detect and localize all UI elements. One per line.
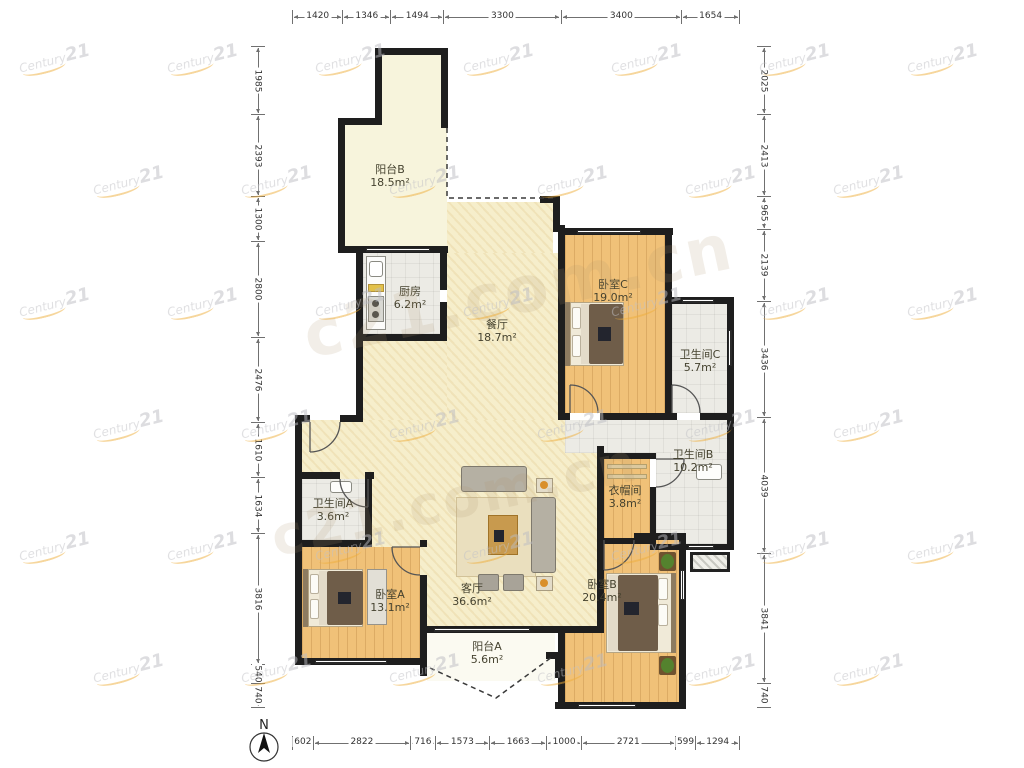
stove-burner [372, 311, 379, 318]
room-label-bath-a: 卫生间A 3.6m² [298, 497, 368, 523]
wall [679, 533, 686, 709]
watermark: Century21 [91, 162, 167, 200]
room-label-bath-b: 卫生间B 10.2m² [655, 448, 731, 474]
room-name: 客厅 [437, 582, 507, 595]
bed-b-headboard [671, 573, 676, 653]
window [315, 660, 387, 664]
watermark: Century21 [905, 40, 981, 78]
room-area: 18.7m² [462, 331, 532, 344]
dimension-segment: 740 [251, 683, 265, 708]
watermark-swoosh-icon [317, 58, 362, 79]
dimension-value: 716 [412, 737, 433, 747]
cloak-shelf [607, 464, 647, 469]
dimension-segment: 540 [251, 664, 265, 683]
room-label-balcony-b: 阳台B 18.5m² [355, 163, 425, 189]
wall [340, 415, 363, 422]
dimension-value: 4039 [758, 472, 768, 499]
room-label-bedroom-c: 卧室C 19.0m² [578, 278, 648, 304]
room-area: 6.2m² [375, 298, 445, 311]
watermark: Century21 [17, 284, 93, 322]
bed-c-tray [598, 327, 611, 341]
window [578, 704, 636, 708]
window [577, 230, 641, 234]
watermark: Century21 [165, 528, 241, 566]
compass-needle-icon [258, 733, 270, 753]
plant-icon [659, 552, 676, 571]
dimension-segment: 2393 [251, 114, 265, 196]
dimension-value: 599 [675, 737, 696, 747]
room-label-bedroom-a: 卧室A 13.1m² [355, 588, 425, 614]
watermark-swoosh-icon [169, 302, 214, 323]
dimension-value: 1573 [449, 737, 476, 747]
dimension-value: 1494 [404, 11, 431, 21]
room-label-kitchen: 厨房 6.2m² [375, 285, 445, 311]
kitchen-sink-icon [369, 261, 383, 277]
watermark: Century21 [91, 650, 167, 688]
watermark: Century21 [17, 40, 93, 78]
dimension-value: 1000 [551, 737, 578, 747]
compass-circle [250, 733, 278, 761]
room-label-balcony-a: 阳台A 5.6m² [452, 640, 522, 666]
dimension-segment: 602 [292, 736, 313, 750]
room-area: 20.4m² [567, 591, 637, 604]
window [688, 545, 714, 549]
watermark-swoosh-icon [909, 302, 954, 323]
bed-a-pillow [310, 599, 319, 619]
compass: N [250, 718, 278, 761]
watermark-swoosh-icon [95, 424, 140, 445]
bath-a-basin [330, 481, 352, 493]
bed-b-pillow [658, 578, 668, 600]
bed-a-tray [338, 592, 351, 604]
dimension-segment: 2721 [581, 736, 675, 750]
dimension-segment: 2139 [757, 229, 771, 301]
wall [420, 540, 427, 547]
wall [356, 341, 363, 422]
wall [420, 626, 427, 676]
watermark-swoosh-icon [21, 302, 66, 323]
watermark-swoosh-icon [21, 58, 66, 79]
room-name: 阳台B [355, 163, 425, 176]
watermark-swoosh-icon [909, 546, 954, 567]
room-name: 厨房 [375, 285, 445, 298]
window [434, 628, 530, 632]
floor-bedroom-b-lower [565, 633, 604, 702]
dimension-segment: 1654 [681, 10, 740, 24]
dimension-segment: 3841 [757, 553, 771, 683]
wall [375, 48, 382, 125]
room-label-dining: 餐厅 18.7m² [462, 318, 532, 344]
dimension-segment: 2413 [757, 114, 771, 196]
side-table-lamp [540, 579, 548, 587]
dimension-value: 602 [292, 737, 313, 747]
watermark-swoosh-icon [169, 546, 214, 567]
dimension-value: 3841 [758, 605, 768, 632]
dimension-segment: 1663 [489, 736, 546, 750]
dimension-segment: 1300 [251, 196, 265, 241]
wall [375, 48, 448, 55]
dimension-segment: 1294 [695, 736, 740, 750]
dimension-value: 2476 [252, 366, 262, 393]
room-label-living: 客厅 36.6m² [437, 582, 507, 608]
room-label-cloakroom: 衣帽间 3.8m² [592, 484, 658, 510]
dimension-value: 1663 [505, 737, 532, 747]
watermark: Century21 [91, 406, 167, 444]
watermark-swoosh-icon [835, 180, 880, 201]
wall [441, 48, 448, 128]
watermark-swoosh-icon [835, 424, 880, 445]
watermark: Century21 [165, 40, 241, 78]
wall [700, 413, 734, 420]
wall [338, 118, 345, 253]
room-area: 3.8m² [592, 497, 658, 510]
room-area: 5.7m² [664, 361, 736, 374]
room-area: 3.6m² [298, 510, 368, 523]
dimension-value: 1634 [252, 492, 262, 519]
watermark: Century21 [609, 40, 685, 78]
dimension-value: 2025 [758, 67, 768, 94]
dimension-segment: 1573 [435, 736, 489, 750]
wall [295, 472, 340, 479]
watermark: Century21 [905, 528, 981, 566]
dimension-value: 965 [758, 202, 768, 223]
wall [597, 533, 604, 540]
wall [597, 453, 650, 459]
room-name: 卫生间A [298, 497, 368, 510]
watermark-swoosh-icon [687, 668, 732, 689]
watermark-swoosh-icon [169, 58, 214, 79]
room-area: 19.0m² [578, 291, 648, 304]
watermark: Century21 [905, 284, 981, 322]
watermark-swoosh-icon [95, 668, 140, 689]
bed-a-sheet [319, 571, 327, 625]
wall [600, 413, 668, 420]
room-name: 餐厅 [462, 318, 532, 331]
wall [356, 246, 363, 341]
watermark-swoosh-icon [835, 668, 880, 689]
wall [295, 540, 372, 547]
watermark: Century21 [535, 162, 611, 200]
dimension-segment: 3300 [443, 10, 560, 24]
watermark: Century21 [831, 406, 907, 444]
dimension-segment: 2476 [251, 337, 265, 422]
floor-dining-strip [363, 341, 447, 420]
watermark: Century21 [831, 650, 907, 688]
dimension-segment: 965 [757, 196, 771, 229]
dimension-segment: 716 [410, 736, 435, 750]
dimension-value: 3400 [608, 11, 635, 21]
watermark-swoosh-icon [21, 546, 66, 567]
dimension-value: 2393 [252, 142, 262, 169]
watermark-swoosh-icon [909, 58, 954, 79]
dimension-segment: 2025 [757, 46, 771, 114]
dimension-segment: 3436 [757, 301, 771, 417]
room-label-bath-c: 卫生间C 5.7m² [664, 348, 736, 374]
ac-platform [690, 552, 730, 572]
side-table-lamp [540, 481, 548, 489]
dimension-value: 3816 [252, 586, 262, 613]
dimension-value: 2139 [758, 252, 768, 279]
wall [440, 246, 447, 290]
sofa-top [461, 466, 527, 492]
dimension-value: 740 [252, 685, 262, 706]
dimension-segment: 1346 [342, 10, 390, 24]
dimension-value: 1610 [252, 437, 262, 464]
wall [356, 334, 447, 341]
room-area: 18.5m² [355, 176, 425, 189]
watermark-swoosh-icon [465, 58, 510, 79]
floor-entry [447, 202, 553, 253]
dimension-value: 2800 [252, 276, 262, 303]
dimension-segment: 1610 [251, 422, 265, 477]
dimension-segment: 1985 [251, 46, 265, 114]
dimension-value: 1654 [697, 11, 724, 21]
wall [555, 652, 562, 678]
watermark-swoosh-icon [613, 58, 658, 79]
room-name: 卧室A [355, 588, 425, 601]
watermark: Century21 [165, 284, 241, 322]
watermark-swoosh-icon [687, 180, 732, 201]
dimension-segment: 2822 [313, 736, 410, 750]
dimension-segment: 1000 [546, 736, 580, 750]
window [366, 248, 430, 252]
bed-c-sheet [581, 304, 589, 364]
dimension-value: 540 [252, 663, 262, 684]
dimension-value: 740 [758, 685, 768, 706]
room-name: 卫生间C [664, 348, 736, 361]
wall [558, 228, 565, 420]
room-label-bedroom-b: 卧室B 20.4m² [567, 578, 637, 604]
wall [558, 413, 570, 420]
room-area: 13.1m² [355, 601, 425, 614]
dimension-value: 3436 [758, 346, 768, 373]
dimension-segment: 3400 [561, 10, 682, 24]
dimension-segment: 740 [757, 683, 771, 708]
watermark: Century21 [683, 162, 759, 200]
dimension-segment: 1494 [390, 10, 443, 24]
compass-north-label: N [259, 718, 269, 733]
dimension-value: 1420 [304, 11, 331, 21]
watermark: Century21 [683, 650, 759, 688]
room-name: 衣帽间 [592, 484, 658, 497]
dimension-segment: 599 [675, 736, 696, 750]
bed-b-pillow [658, 604, 668, 626]
dimension-value: 2822 [348, 737, 375, 747]
dimension-value: 2721 [615, 737, 642, 747]
dimension-segment: 4039 [757, 417, 771, 553]
room-name: 卧室B [567, 578, 637, 591]
dimension-segment: 3816 [251, 533, 265, 664]
table-deco [494, 530, 504, 542]
room-area: 10.2m² [655, 461, 731, 474]
room-name: 阳台A [452, 640, 522, 653]
watermark: Century21 [17, 528, 93, 566]
wall [665, 228, 672, 420]
watermark: Century21 [239, 162, 315, 200]
room-area: 36.6m² [437, 595, 507, 608]
sofa-right [531, 497, 556, 573]
floor-plan: N 阳台B 18.5m² 厨房 6.2m² 餐厅 18.7m² 卧室C 19.0… [0, 0, 1024, 768]
plant-icon [659, 656, 676, 675]
watermark: Century21 [461, 40, 537, 78]
bed-c-pillow [572, 335, 581, 357]
cloak-shelf [607, 474, 647, 479]
dimension-segment: 1634 [251, 477, 265, 533]
window [680, 570, 685, 600]
dimension-value: 1300 [252, 206, 262, 233]
dimension-value: 1294 [704, 737, 731, 747]
bed-c-pillow [572, 307, 581, 329]
dimension-segment: 1420 [292, 10, 342, 24]
watermark-swoosh-icon [95, 180, 140, 201]
floor-balcony-b-notch [382, 55, 441, 125]
dimension-value: 1985 [252, 67, 262, 94]
room-area: 5.6m² [452, 653, 522, 666]
dimension-value: 1346 [353, 11, 380, 21]
dimension-value: 2413 [758, 142, 768, 169]
dimension-value: 3300 [489, 11, 516, 21]
watermark: Century21 [831, 162, 907, 200]
bed-a-pillow [310, 574, 319, 594]
room-name: 卧室C [578, 278, 648, 291]
room-name: 卫生间B [655, 448, 731, 461]
dimension-segment: 2800 [251, 241, 265, 337]
window [682, 299, 714, 303]
